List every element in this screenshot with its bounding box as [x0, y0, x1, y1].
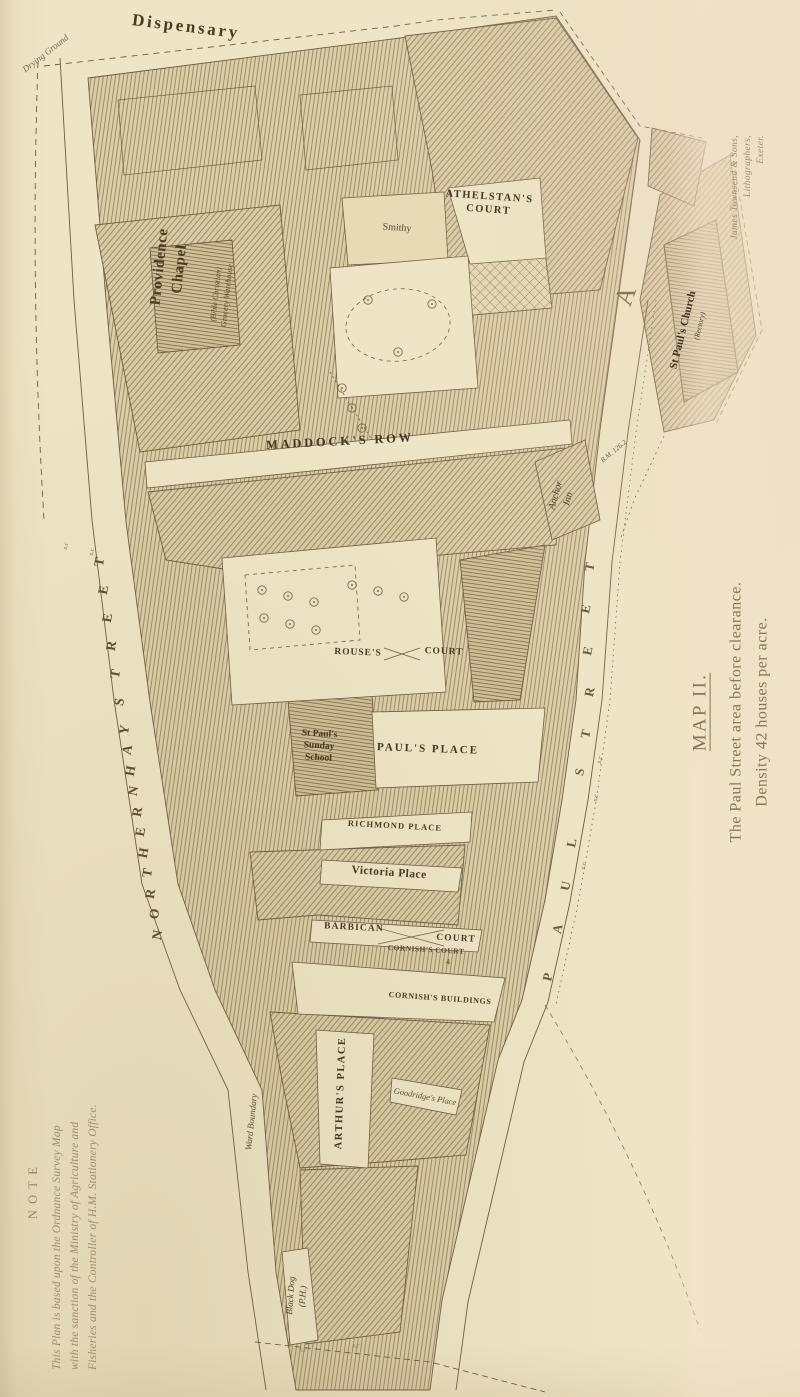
- street-northernhay-street-letter-4: T: [108, 668, 124, 679]
- map-caption: MAP II. The Paul Street area before clea…: [690, 502, 777, 922]
- note-line-1: This Plan is based upon the Ordnance Sur…: [49, 1010, 67, 1370]
- label-sc-1: s.c: [62, 542, 70, 550]
- imprint: James Townsend & Sons, Lithographers, Ex…: [729, 135, 767, 365]
- label-providence-chapel: ProvidenceChapel: [147, 227, 194, 308]
- street-northernhay-street-letter-8: H: [123, 765, 139, 778]
- label-cornishs-buildings: CORNISH'S BUILDINGS: [388, 991, 491, 1007]
- street-paul-street-letter-7: E: [580, 645, 596, 656]
- label-sc-7: s.c: [352, 1342, 360, 1350]
- label-sc-3: s.c: [592, 794, 600, 802]
- label-pauls-place: PAUL'S PLACE: [377, 741, 479, 757]
- label-sc-4: s.c: [596, 756, 604, 764]
- street-paul-street-letter-1: A: [550, 923, 566, 935]
- street-northernhay-street-letter-3: R: [104, 640, 120, 652]
- label-sc-5: s.c: [580, 862, 588, 870]
- street-northernhay-street-letter-1: E: [96, 584, 112, 595]
- label-anchor-inn: AnchorInn: [545, 479, 578, 514]
- street-paul-street-letter-3: L: [564, 837, 580, 848]
- label-ward-boundary: Ward Boundary: [244, 1093, 260, 1150]
- label-sc-6: s.c: [299, 1346, 307, 1354]
- label-richmond-place: RICHMOND PLACE: [348, 819, 443, 833]
- street-paul-street-letter-4: S: [572, 767, 587, 777]
- label-rouses: ROUSE'S: [334, 647, 382, 659]
- label-athelstans-court: ATHELSTAN'SCOURT: [444, 188, 534, 219]
- street-northernhay-street-letter-0: T: [92, 556, 108, 567]
- map-title: MAP II.: [690, 673, 712, 752]
- street-northernhay-street-letter-16: N: [150, 929, 166, 941]
- note-heading: NOTE: [26, 1010, 41, 1370]
- street-paul-street-letter-0: P: [540, 972, 556, 983]
- street-paul-street-letter-2: U: [558, 880, 574, 892]
- label-number-4: 4: [446, 959, 450, 968]
- note-block: NOTE This Plan is based upon the Ordnanc…: [26, 1010, 102, 1370]
- caption-line-2: Density 42 houses per acre.: [750, 502, 776, 922]
- caption-line-1: The Paul Street area before clearance.: [724, 502, 750, 922]
- note-line-2: with the sanction of the Ministry of Agr…: [67, 1010, 85, 1370]
- street-northernhay-street-letter-14: R: [143, 888, 159, 900]
- street-paul-street-letter-9: T: [582, 561, 598, 572]
- street-northernhay-street-letter-6: Y: [117, 724, 133, 736]
- street-northernhay-street-letter-2: E: [100, 612, 116, 623]
- street-paul-street-letter-8: E: [578, 603, 594, 614]
- label-sc-2: s.c: [88, 548, 96, 556]
- street-paul-street-letter-5: T: [578, 728, 594, 739]
- street-northernhay-street-letter-11: E: [133, 826, 149, 837]
- label-dispensary: Dispensary: [131, 11, 241, 43]
- label-black-dog-ph: Black Dog(P.H.): [284, 1276, 310, 1316]
- street-northernhay-street-letter-5: S: [112, 697, 128, 707]
- street-northernhay-street-letter-10: R: [130, 806, 146, 818]
- street-northernhay-street-letter-13: T: [140, 867, 156, 878]
- label-maddocks-row: MADDOCK'S ROW: [266, 431, 414, 452]
- label-bm-126: B.M. 126.2: [600, 439, 629, 465]
- label-rectory: (Rectory): [693, 311, 708, 340]
- label-barbican-court: COURT: [436, 933, 476, 946]
- street-northernhay-street-letter-9: N: [126, 785, 142, 797]
- label-goodridges-place: Goodridge's Place: [393, 1086, 457, 1107]
- label-smithy: Smithy: [382, 222, 412, 235]
- map-labels-layer: Drying GroundDispensaryProvidenceChapel(…: [0, 0, 800, 1397]
- label-barbican: BARBICAN: [324, 921, 384, 935]
- label-arthurs-place: ARTHUR'S PLACE: [333, 1036, 348, 1149]
- label-cornishs-court: CORNISH'S COURT: [387, 944, 464, 956]
- label-rouses-court: COURT: [424, 646, 463, 658]
- note-line-3: Fisheries and the Controller of H.M. Sta…: [84, 1010, 102, 1370]
- imprint-line-1: James Townsend & Sons,: [729, 135, 742, 365]
- label-st-pauls-sunday-school: St Paul'sSundaySchool: [300, 728, 337, 765]
- map-plate-page: { "caption": { "heading": "MAP II.", "li…: [0, 0, 800, 1397]
- street-paul-street-letter-6: R: [582, 686, 598, 698]
- street-northernhay-street-letter-12: H: [136, 847, 152, 860]
- street-northernhay-street-letter-15: O: [147, 908, 163, 921]
- label-victoria-place: Victoria Place: [351, 864, 427, 882]
- imprint-line-3: Exeter.: [754, 135, 767, 365]
- label-letter-a-ornate: A: [609, 282, 642, 309]
- street-northernhay-street-letter-7: A: [120, 744, 136, 756]
- imprint-line-2: Lithographers,: [742, 135, 755, 365]
- label-providence-chapel-sub: (Bible Christian)Grocery Warehouse: [208, 262, 236, 327]
- label-drying-ground: Drying Ground: [21, 33, 71, 75]
